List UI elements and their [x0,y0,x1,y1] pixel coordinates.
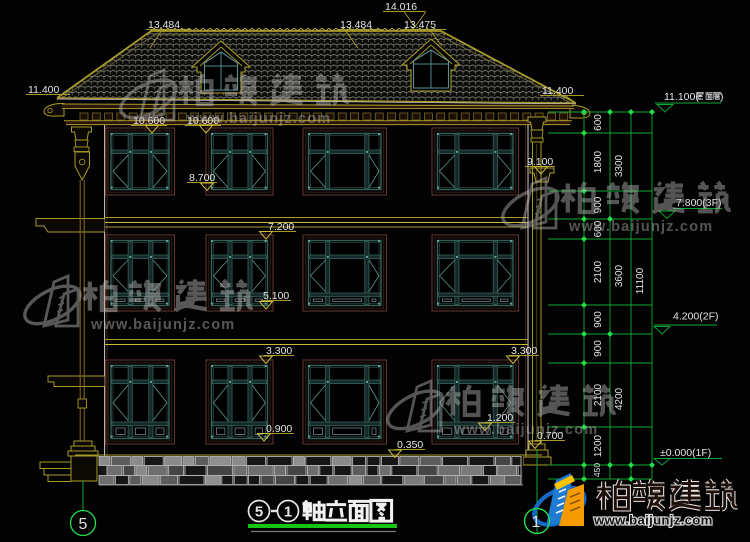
svg-text:): ) [720,91,724,103]
svg-text:1: 1 [284,504,292,521]
svg-text:1: 1 [532,514,541,531]
svg-text:900: 900 [593,311,604,328]
svg-text:3300: 3300 [614,154,625,177]
svg-text:2100: 2100 [593,260,604,283]
svg-text:4.200(2F): 4.200(2F) [673,311,719,323]
svg-text:±0.000(1F): ±0.000(1F) [660,447,711,459]
svg-text:11100: 11100 [635,267,646,294]
svg-text:600: 600 [593,114,604,131]
svg-text:4200: 4200 [614,387,625,410]
svg-text:1800: 1800 [593,150,604,173]
svg-text:3600: 3600 [614,264,625,287]
svg-text:www.baijunjz.com: www.baijunjz.com [593,513,713,528]
svg-text:450: 450 [592,463,602,477]
svg-text:11.100(: 11.100( [664,91,699,103]
svg-text:5: 5 [255,504,263,521]
svg-text:5: 5 [79,516,88,533]
svg-text:900: 900 [593,340,604,357]
